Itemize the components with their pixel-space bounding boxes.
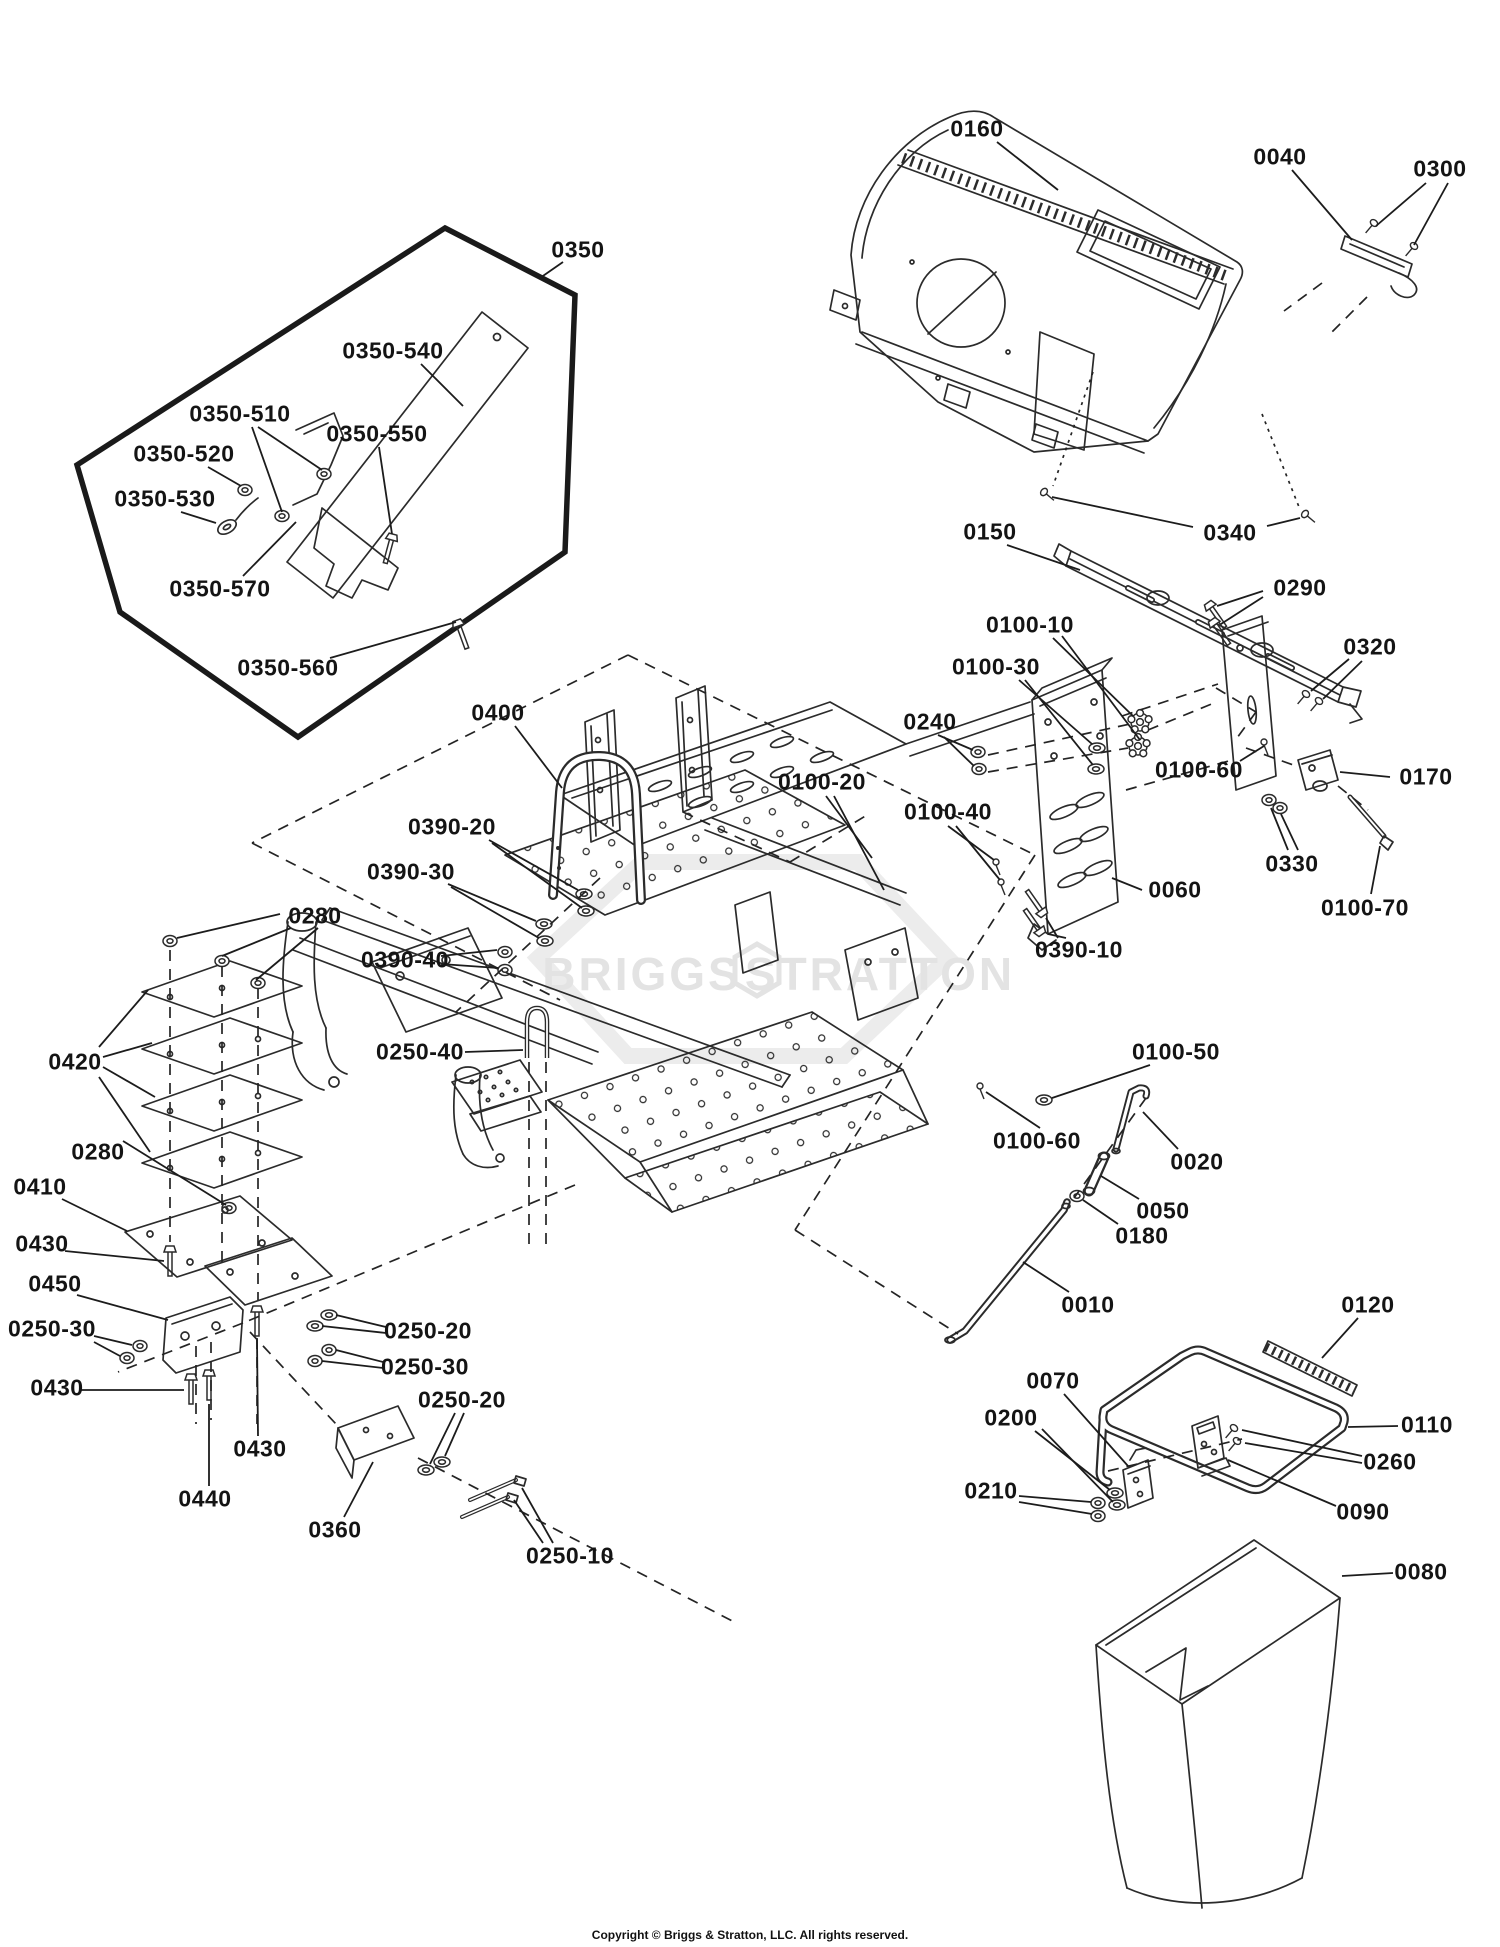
leader-line-0250-30-b	[322, 1361, 383, 1368]
leader-line-0350	[540, 262, 563, 278]
leader-line-0100-60-lower	[986, 1092, 1040, 1128]
leader-line-0250-30-b	[336, 1350, 383, 1362]
support-channel-drawing	[1054, 544, 1362, 723]
leader-line-0350-550	[379, 447, 392, 534]
leader-line-0290	[1221, 597, 1263, 624]
leader-line-0340	[1052, 497, 1193, 527]
parts-diagram-page: BRIGGS STRATTON	[0, 0, 1500, 1947]
copyright-text: Copyright © Briggs & Stratton, LLC. All …	[0, 1928, 1500, 1942]
leader-line-0250-30-a	[94, 1342, 120, 1356]
leader-line-0050	[1101, 1176, 1139, 1199]
leader-line-0290	[1217, 591, 1263, 606]
leader-line-0350-530	[181, 512, 216, 523]
leader-line-0350-520	[208, 467, 241, 486]
watermark-text-right: STRATTON	[745, 948, 1015, 1000]
leader-line-0250-40	[465, 1050, 523, 1052]
leader-line-0250-20-a	[322, 1326, 386, 1333]
hood-latch-drawing	[1341, 236, 1417, 297]
leader-line-0020	[1143, 1112, 1178, 1149]
leader-line-0420	[99, 1077, 150, 1152]
leader-line-0210	[1019, 1496, 1091, 1502]
leader-line-0300	[1414, 183, 1448, 245]
leader-line-0390-30	[448, 884, 536, 921]
leader-line-0100-60-upper	[1240, 746, 1264, 761]
leader-line-0250-30-a	[94, 1336, 132, 1345]
inset-hexagon-border	[77, 228, 575, 737]
leader-line-0110	[1348, 1426, 1398, 1427]
leader-line-0350-510	[258, 427, 322, 470]
bag-drawing	[1096, 1540, 1340, 1908]
grip-strip-drawing	[1263, 1341, 1357, 1396]
leader-line-0330	[1271, 808, 1288, 850]
leader-line-0180	[1083, 1200, 1118, 1224]
hinge-bracket-drawing	[1298, 750, 1393, 850]
leader-line-0350-570	[243, 522, 296, 576]
leader-line-0350-540	[421, 364, 463, 406]
leader-line-0420	[103, 1067, 155, 1097]
skid-plate-drawing	[125, 1196, 526, 1517]
leader-line-0120	[1322, 1318, 1358, 1358]
leader-line-0250-20-b	[445, 1413, 464, 1456]
leader-line-0280-upper	[222, 928, 291, 956]
diagram-line-art: BRIGGS STRATTON	[0, 0, 1500, 1947]
leader-line-0400	[515, 726, 562, 788]
leader-line-0280-lower	[123, 1141, 226, 1205]
leader-line-0040	[1292, 170, 1352, 240]
leader-line-0420	[99, 990, 148, 1047]
leader-line-0250-20-a	[336, 1315, 386, 1327]
hood-cover-drawing	[830, 111, 1242, 453]
leader-line-0100-70	[1371, 846, 1380, 894]
u-bolt-drawing	[527, 1008, 547, 1058]
leader-line-0280-upper	[256, 928, 318, 980]
leader-line-0300	[1376, 183, 1426, 226]
leader-line-0100-20	[834, 796, 884, 890]
leader-line-0010	[1023, 1262, 1069, 1292]
leader-line-0170	[1340, 772, 1390, 777]
leader-line-0390-30	[451, 887, 539, 938]
chute-rod-linkage-drawing	[945, 1088, 1147, 1343]
leader-line-0330	[1281, 814, 1298, 850]
leader-line-0080	[1342, 1573, 1393, 1576]
leader-line-0340	[1267, 518, 1300, 526]
leader-line-0100-10	[1062, 636, 1140, 740]
watermark-text-left: BRIGGS	[542, 948, 741, 1000]
leader-line-0450	[77, 1295, 168, 1320]
leader-line-0430-c	[257, 1340, 258, 1436]
leader-line-0240	[944, 737, 974, 766]
leader-line-0410	[62, 1199, 127, 1231]
leader-line-0210	[1019, 1502, 1092, 1514]
leader-line-0280-upper	[177, 914, 280, 938]
